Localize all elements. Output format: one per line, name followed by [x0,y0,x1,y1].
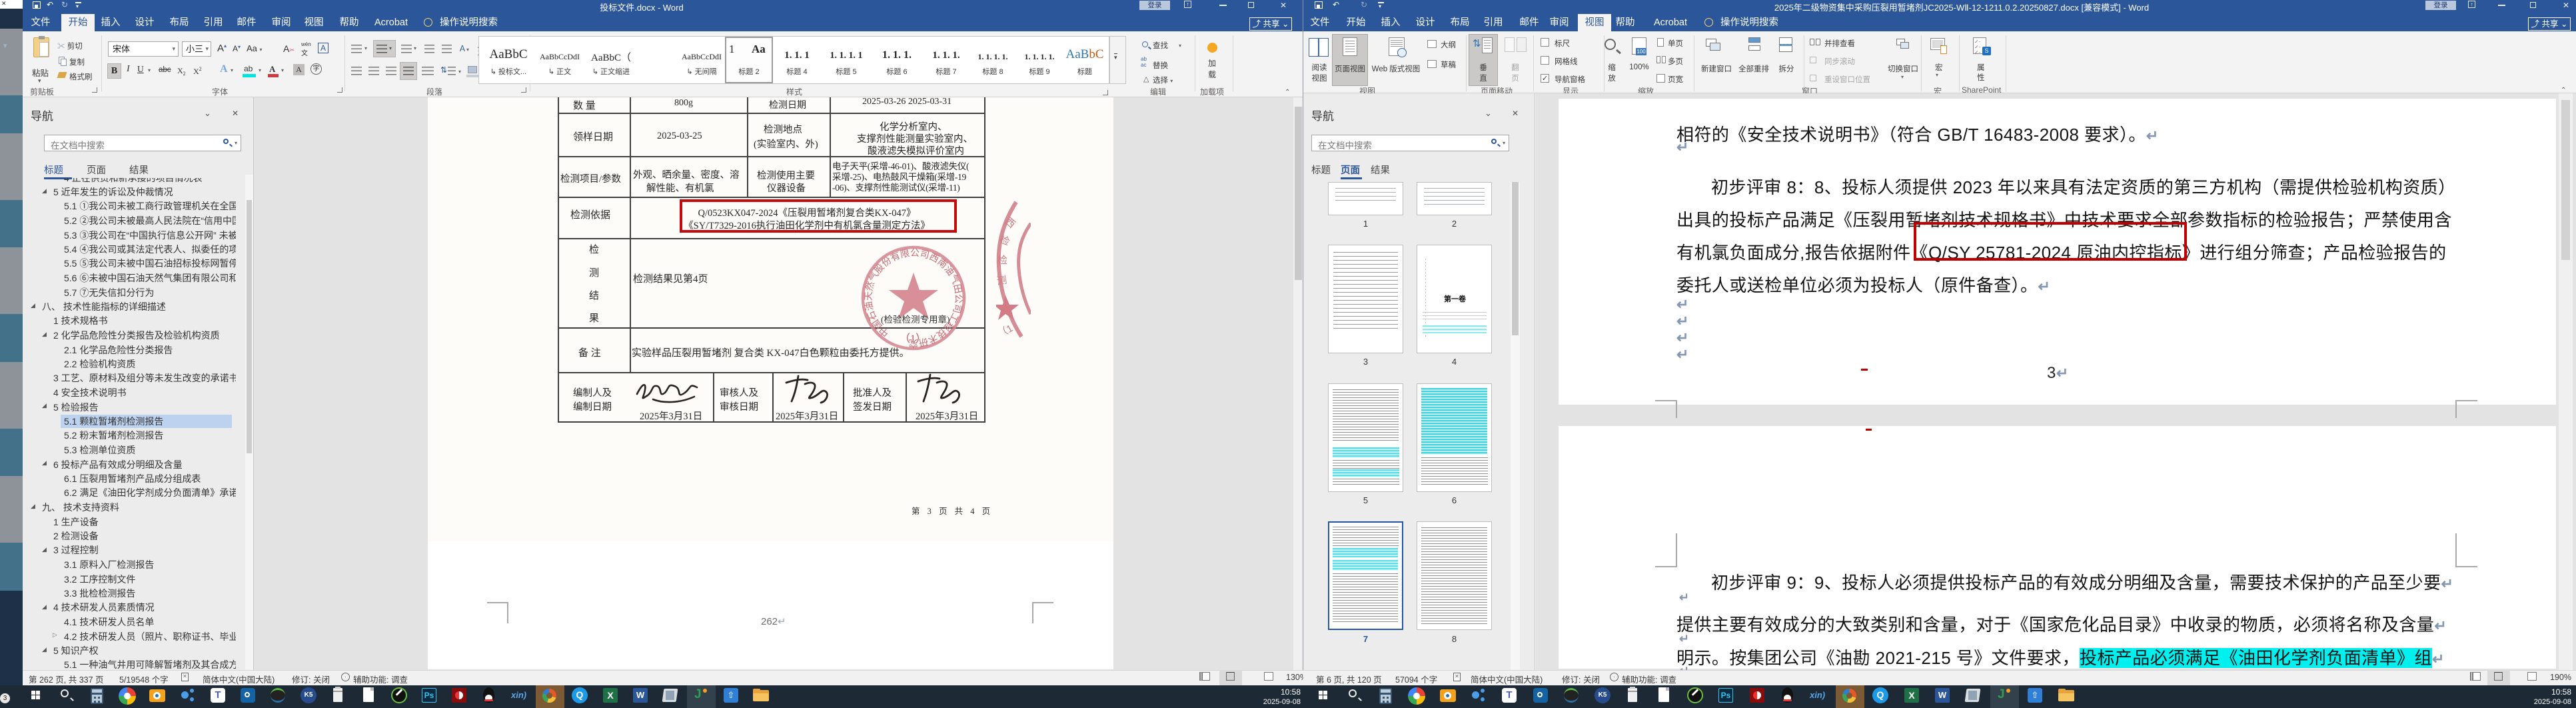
svg-text:（1: （1 [996,323,1015,340]
svg-text:测: 测 [996,275,1007,287]
svg-text:检: 检 [997,255,1007,266]
